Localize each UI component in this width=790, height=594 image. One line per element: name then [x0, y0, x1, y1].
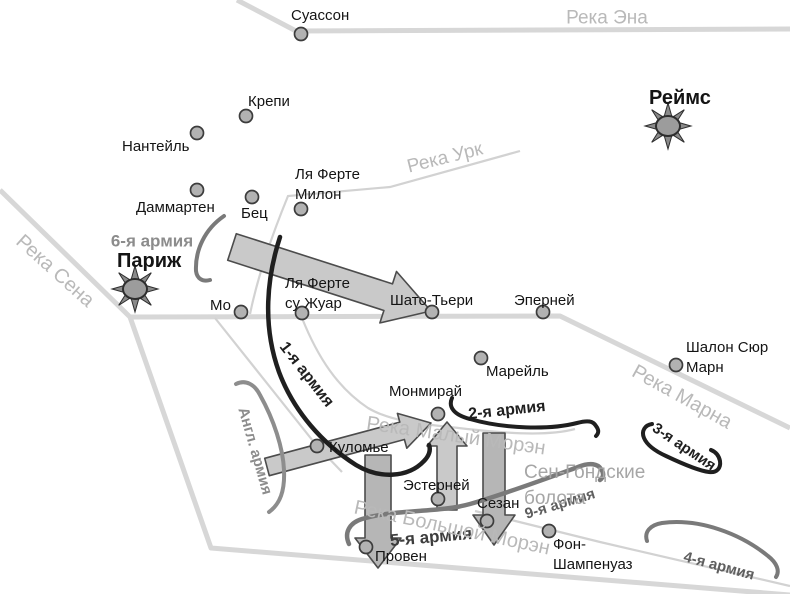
- city-dot: [311, 440, 324, 453]
- city-dot: [481, 515, 494, 528]
- attack-arrow-sezanne-down: [473, 433, 515, 545]
- river-marne: [130, 316, 790, 428]
- city-dot: [240, 110, 253, 123]
- city-dot: [246, 191, 259, 204]
- map-graphics: [0, 0, 790, 594]
- city-dot: [543, 525, 556, 538]
- city-dot: [432, 408, 445, 421]
- city-dot: [670, 359, 683, 372]
- city-dot: [191, 127, 204, 140]
- city-dot: [235, 306, 248, 319]
- front-line-british-army: [236, 382, 284, 512]
- city-dot: [295, 203, 308, 216]
- river-aisne: [237, 0, 790, 31]
- city-dot: [296, 307, 309, 320]
- city-dot: [426, 306, 439, 319]
- city-dot: [295, 28, 308, 41]
- map-canvas: СуассонКрепиНантейльДаммартенБецЛя Ферте…: [0, 0, 790, 594]
- front-line-6th-army: [196, 216, 224, 281]
- city-dot: [432, 493, 445, 506]
- city-sun-icon: [112, 266, 158, 312]
- city-dot: [475, 352, 488, 365]
- river-seine: [0, 190, 790, 594]
- city-dot: [360, 541, 373, 554]
- city-sun-icon: [645, 103, 691, 149]
- city-dot: [537, 306, 550, 319]
- front-line-3rd-army: [643, 424, 720, 472]
- city-dot: [191, 184, 204, 197]
- attack-arrow-coulommiers-montmirail: [265, 413, 431, 475]
